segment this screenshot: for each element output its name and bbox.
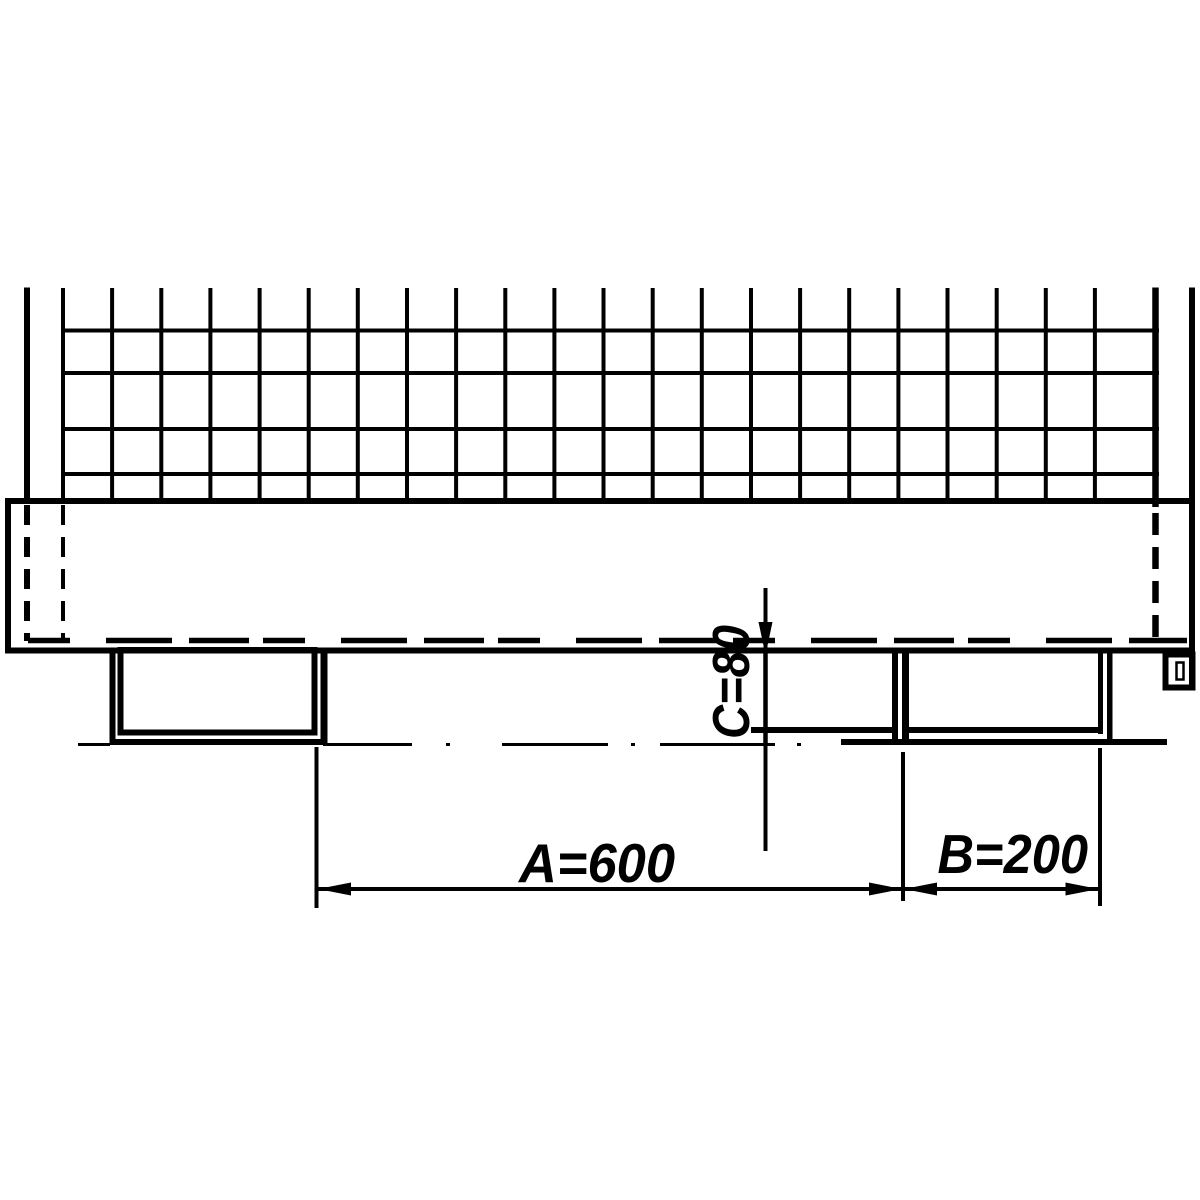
svg-text:B=200: B=200 bbox=[938, 823, 1089, 885]
svg-text:C=80: C=80 bbox=[703, 625, 761, 739]
svg-text:A=600: A=600 bbox=[517, 832, 675, 894]
